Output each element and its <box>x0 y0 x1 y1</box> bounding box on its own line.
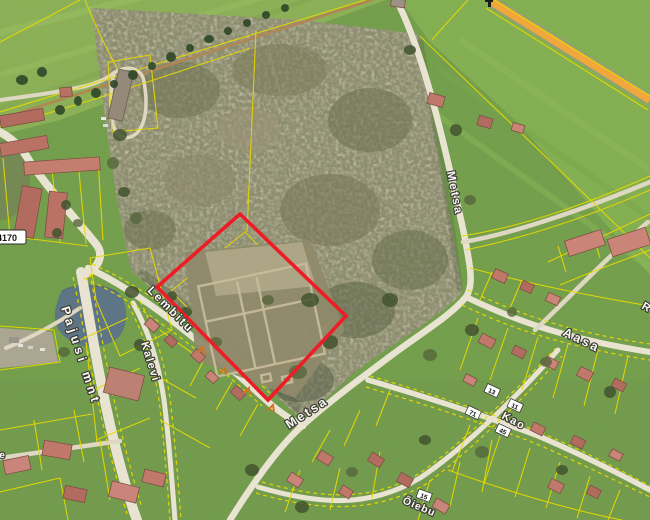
map-viewport[interactable]: Lembitu Kalevi Pajusi mnt Metsa Metsa Aa… <box>0 0 650 520</box>
aerial-map-canvas: Lembitu Kalevi Pajusi mnt Metsa Metsa Aa… <box>0 0 650 520</box>
road-number-text: 4170 <box>0 233 17 243</box>
road-number-badge: 4170 <box>0 230 26 244</box>
street-label-partial-left: ese <box>0 449 6 461</box>
